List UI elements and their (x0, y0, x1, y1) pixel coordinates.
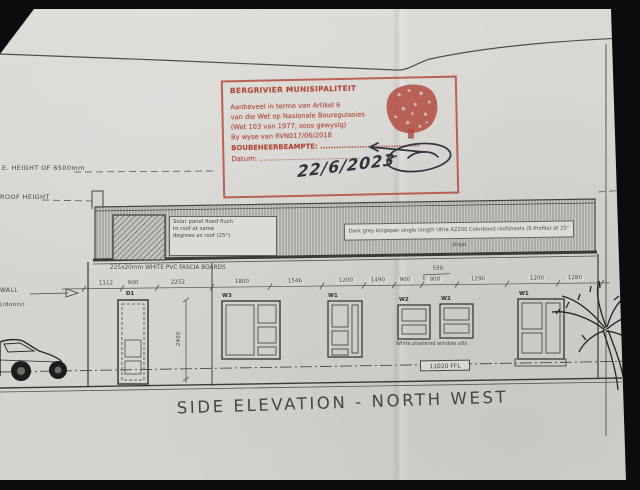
window-w1-pane (352, 305, 358, 353)
solar-note-line: to roof at same (173, 226, 273, 233)
window-w3-pane (258, 327, 276, 343)
window-w1-pane (332, 349, 348, 355)
stamp-official-label: BOUBEHEERBEAMPTE: (231, 143, 318, 153)
roof-height-label: ROOF HEIGHT (0, 193, 50, 201)
window-w1-pane (546, 303, 560, 353)
window-w2-pane (402, 309, 426, 321)
window-w2-label: W2 (399, 297, 409, 303)
dimension-value: 1200 (528, 276, 546, 282)
window-w3-label: W3 (222, 293, 232, 299)
window-w3 (222, 301, 280, 359)
car-graphic (0, 340, 67, 381)
door-d1-panel (125, 340, 141, 357)
window-w1-pane (522, 333, 542, 353)
window-w1-pane (332, 305, 348, 327)
window-w3-pane (258, 305, 276, 323)
door-height-dimension (183, 298, 189, 383)
stamp-emblem-tree (379, 80, 444, 147)
sill-note: White plastered window sills (396, 341, 467, 347)
solar-note-line: degrees as roof (25°) (173, 233, 273, 240)
window-w2-pane (444, 308, 469, 320)
dimension-value: 900 (126, 280, 141, 286)
ffl-level-box: 11020 FFL (420, 360, 470, 372)
solar-panel-note-box: Solar panel fixed flush to roof at same … (169, 216, 277, 256)
elevation-line-drawing (0, 0, 640, 490)
dimension-value: 1280 (566, 275, 584, 281)
ground-line (0, 378, 622, 388)
stamp-date-label: Datum: (231, 155, 257, 164)
roof-level-line-right (598, 189, 640, 192)
ffl-datum-line (0, 361, 640, 372)
ridge-height-label: E. HEIGHT OF 6500mm (2, 164, 85, 172)
door-d1-panel (125, 361, 141, 374)
municipal-approval-stamp: BERGRIVIER MUNISIPALITEIT Aanbeveel in t… (221, 76, 459, 199)
palm-tree-graphic (552, 281, 640, 390)
roof-sheeting-note-box: Dark grey kingspan single length Ultra A… (344, 220, 574, 240)
dimension-value: 900 (398, 277, 413, 283)
door-height-dimension-label: 2400 (176, 332, 182, 346)
window-w1-label: W1 (519, 291, 529, 297)
window-w1-label: W1 (328, 293, 338, 299)
dimension-value: 2252 (169, 280, 187, 286)
dimension-value: 1290 (469, 276, 487, 282)
dimension-value: 1800 (233, 279, 251, 285)
dimension-value: 1200 (337, 278, 355, 284)
door-d1-label: D1 (126, 291, 134, 297)
dimension-value: 900 (428, 277, 443, 283)
window-w2-label: W2 (441, 296, 451, 302)
window-w1-pane (332, 331, 348, 345)
window-w3-pane (258, 347, 276, 355)
window-w3-pane (226, 305, 254, 355)
door-d1 (118, 300, 148, 384)
solar-panel (113, 215, 165, 260)
window-w2-pane (402, 325, 426, 334)
window-w2-pane (444, 324, 469, 333)
sheet-top-border (0, 37, 640, 70)
photo-of-building-plan: Solar panel fixed flush to roof at same … (0, 0, 640, 490)
overhead-dimension: 530 (432, 266, 443, 272)
window-w1-pane (522, 303, 542, 329)
fascia-note: 225x20mm WHITE PVC FASCIA BOARDS (110, 265, 226, 271)
solar-note-line: Solar panel fixed flush (173, 219, 273, 226)
dimension-value: 1490 (369, 277, 387, 283)
dimension-value: 1112 (97, 280, 115, 286)
dimension-value: 1546 (286, 278, 304, 284)
doors-label: (/doors) (0, 302, 25, 308)
ridge-level-line (74, 171, 216, 172)
boundary-wall-label: WALL (0, 287, 18, 294)
